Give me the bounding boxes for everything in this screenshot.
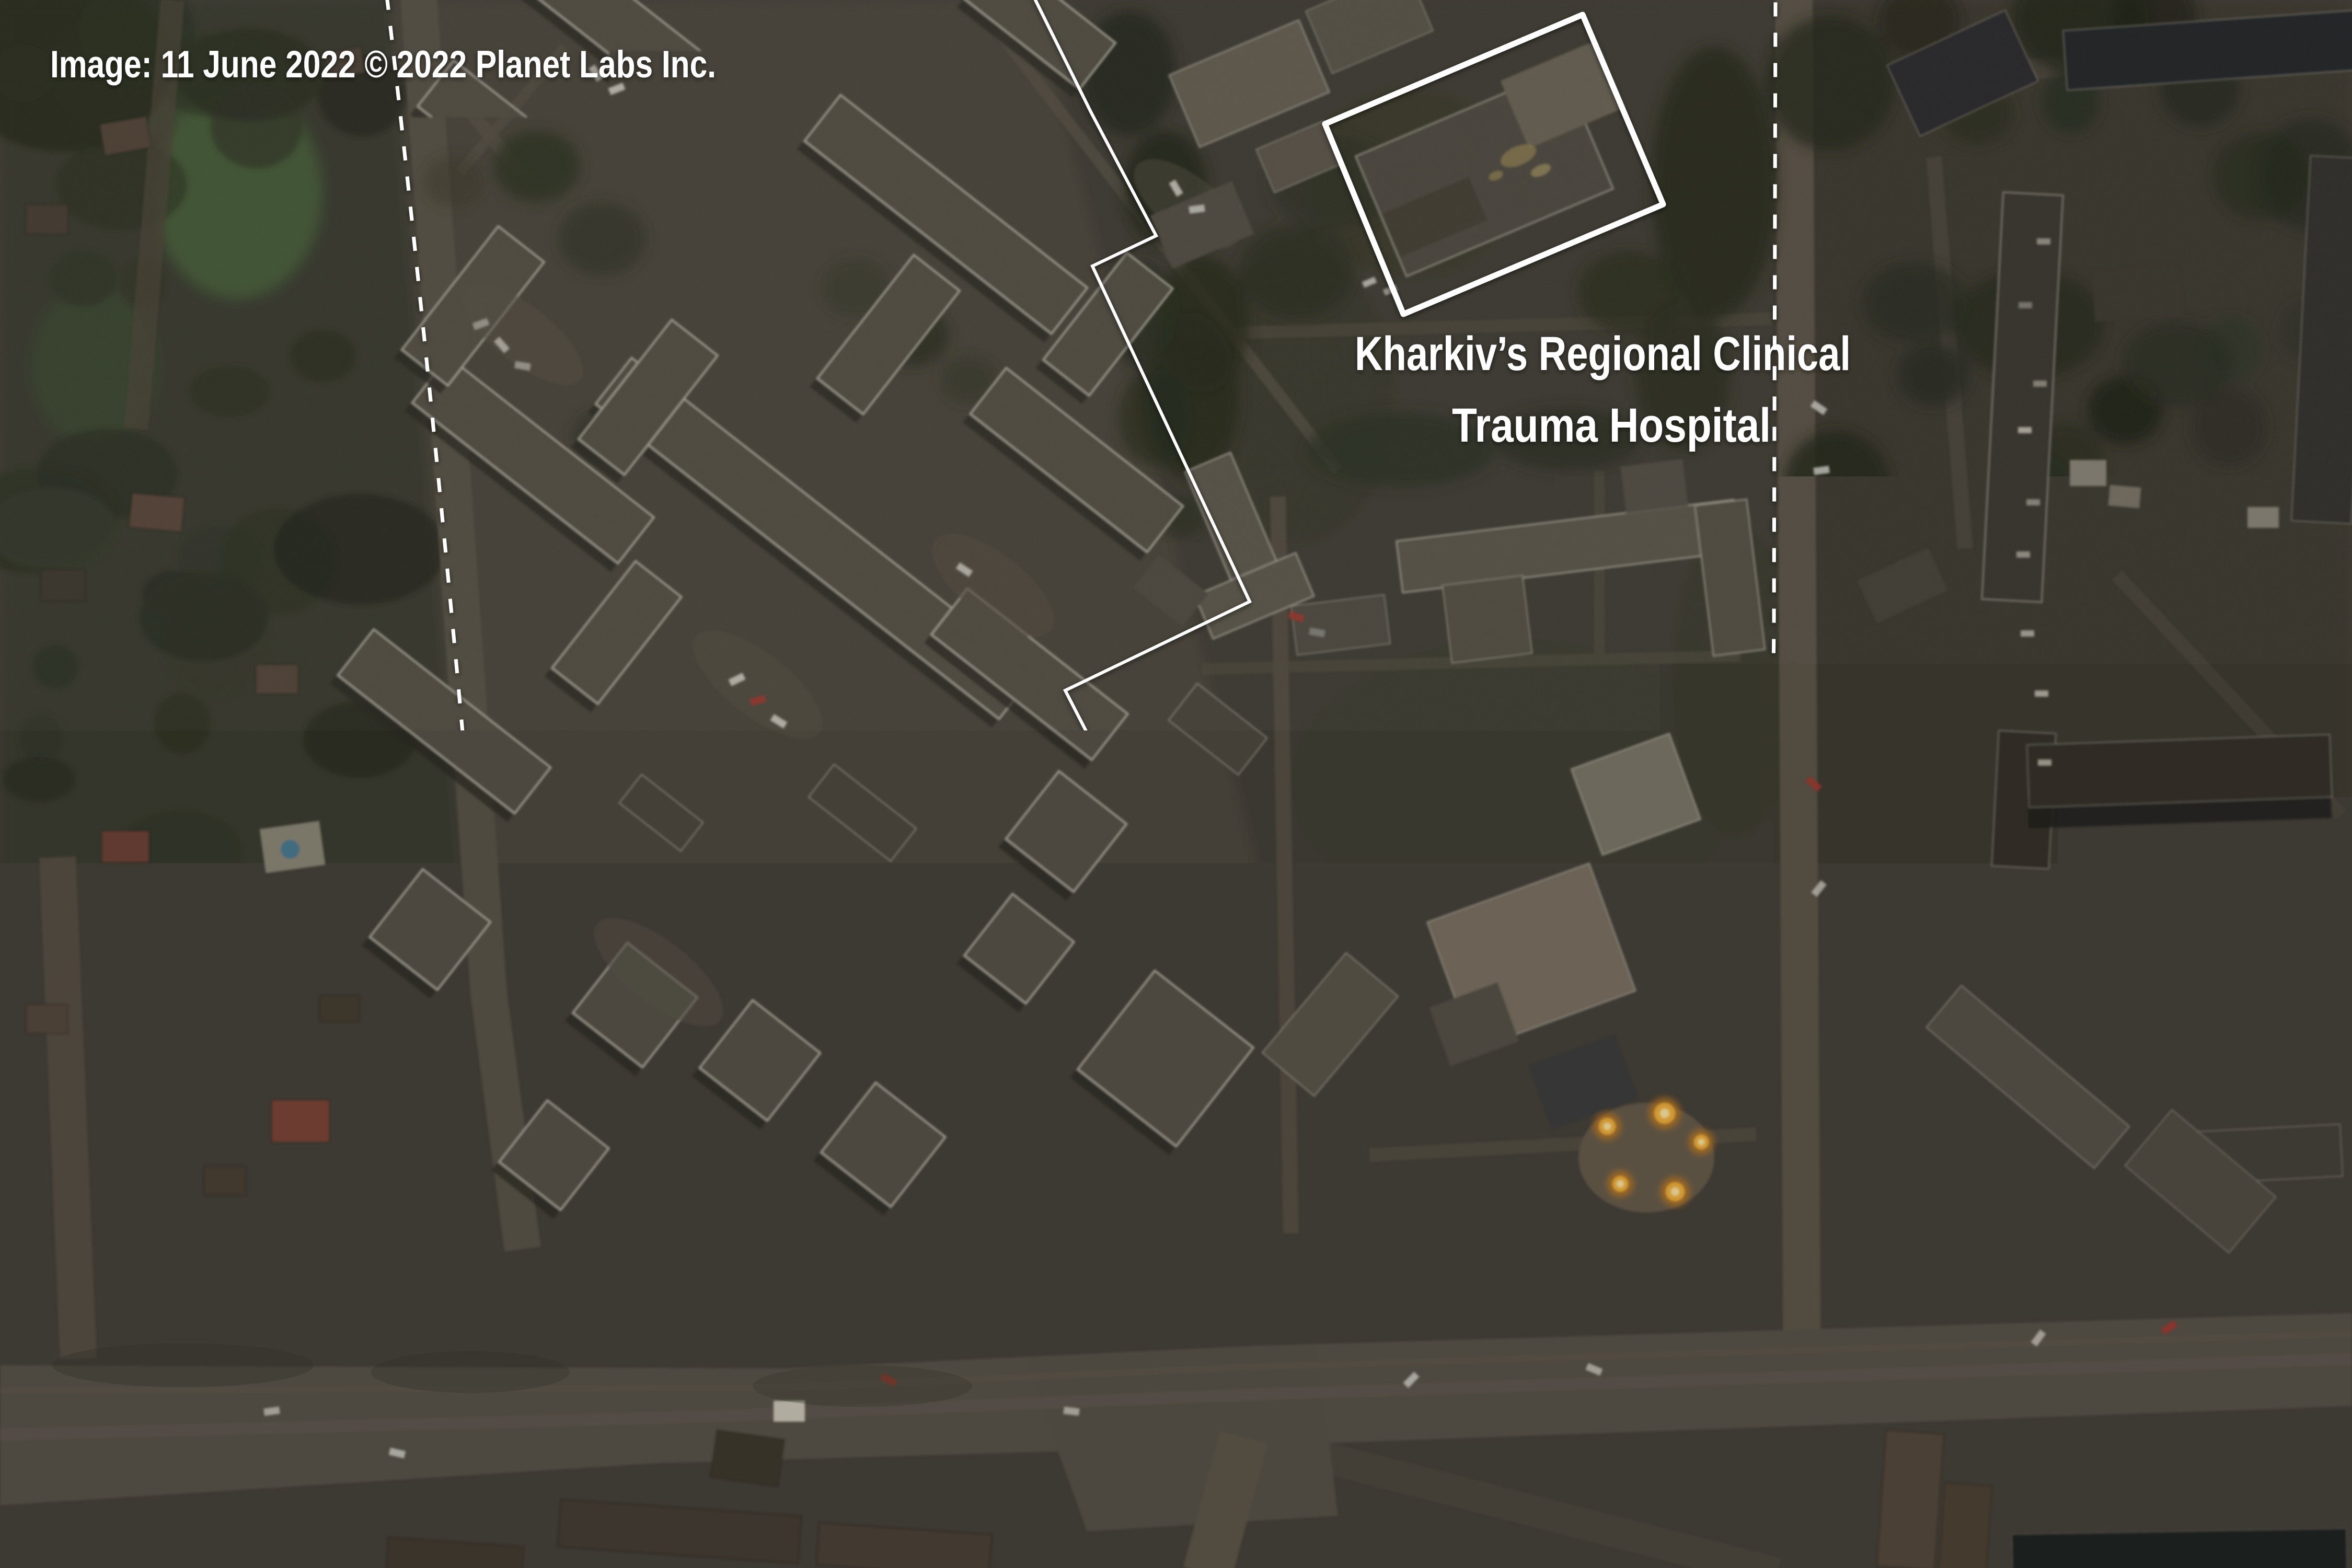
svg-text:Medychna Street: Medychna Street [1776,664,1823,989]
svg-text:Trauma Hospital: Trauma Hospital [1452,399,1771,452]
svg-text:Earthen berms: Earthen berms [420,1087,686,1134]
svg-text:70: 70 [2112,1496,2141,1528]
svg-text:Roadblocks: Roadblocks [1419,1287,1629,1346]
svg-text:Medical Complex: Medical Complex [1293,725,1663,783]
svg-text:N: N [1933,1549,1950,1568]
svg-text:Meters: Meters [2256,1521,2338,1554]
svg-text:Kharkiv’s Regional Clinical: Kharkiv’s Regional Clinical [1355,327,1851,381]
svg-text:Saltivske Highway: Saltivske Highway [965,1327,1244,1377]
svg-text:Image: 11 June 2022 © 2022 Pla: Image: 11 June 2022 © 2022 Planet Labs I… [50,43,716,86]
